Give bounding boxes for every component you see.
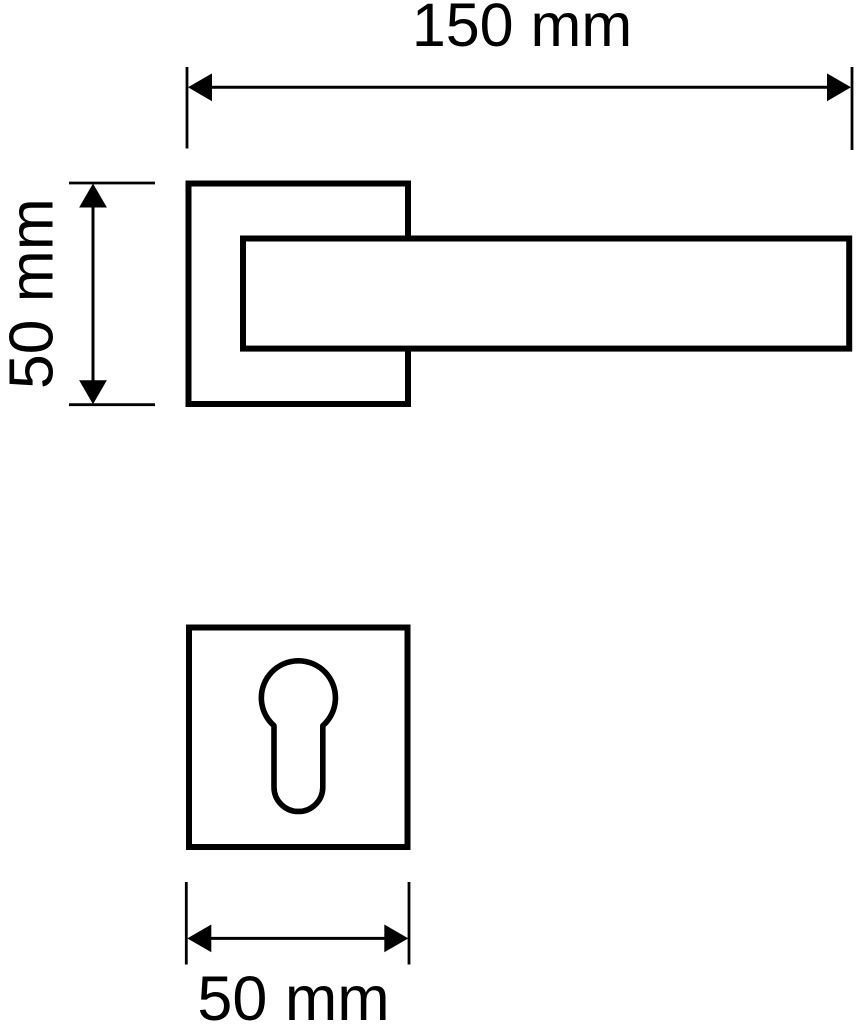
svg-text:150 mm: 150 mm [412, 0, 632, 59]
svg-text:50 mm: 50 mm [197, 964, 389, 1026]
svg-text:50 mm: 50 mm [0, 198, 66, 389]
